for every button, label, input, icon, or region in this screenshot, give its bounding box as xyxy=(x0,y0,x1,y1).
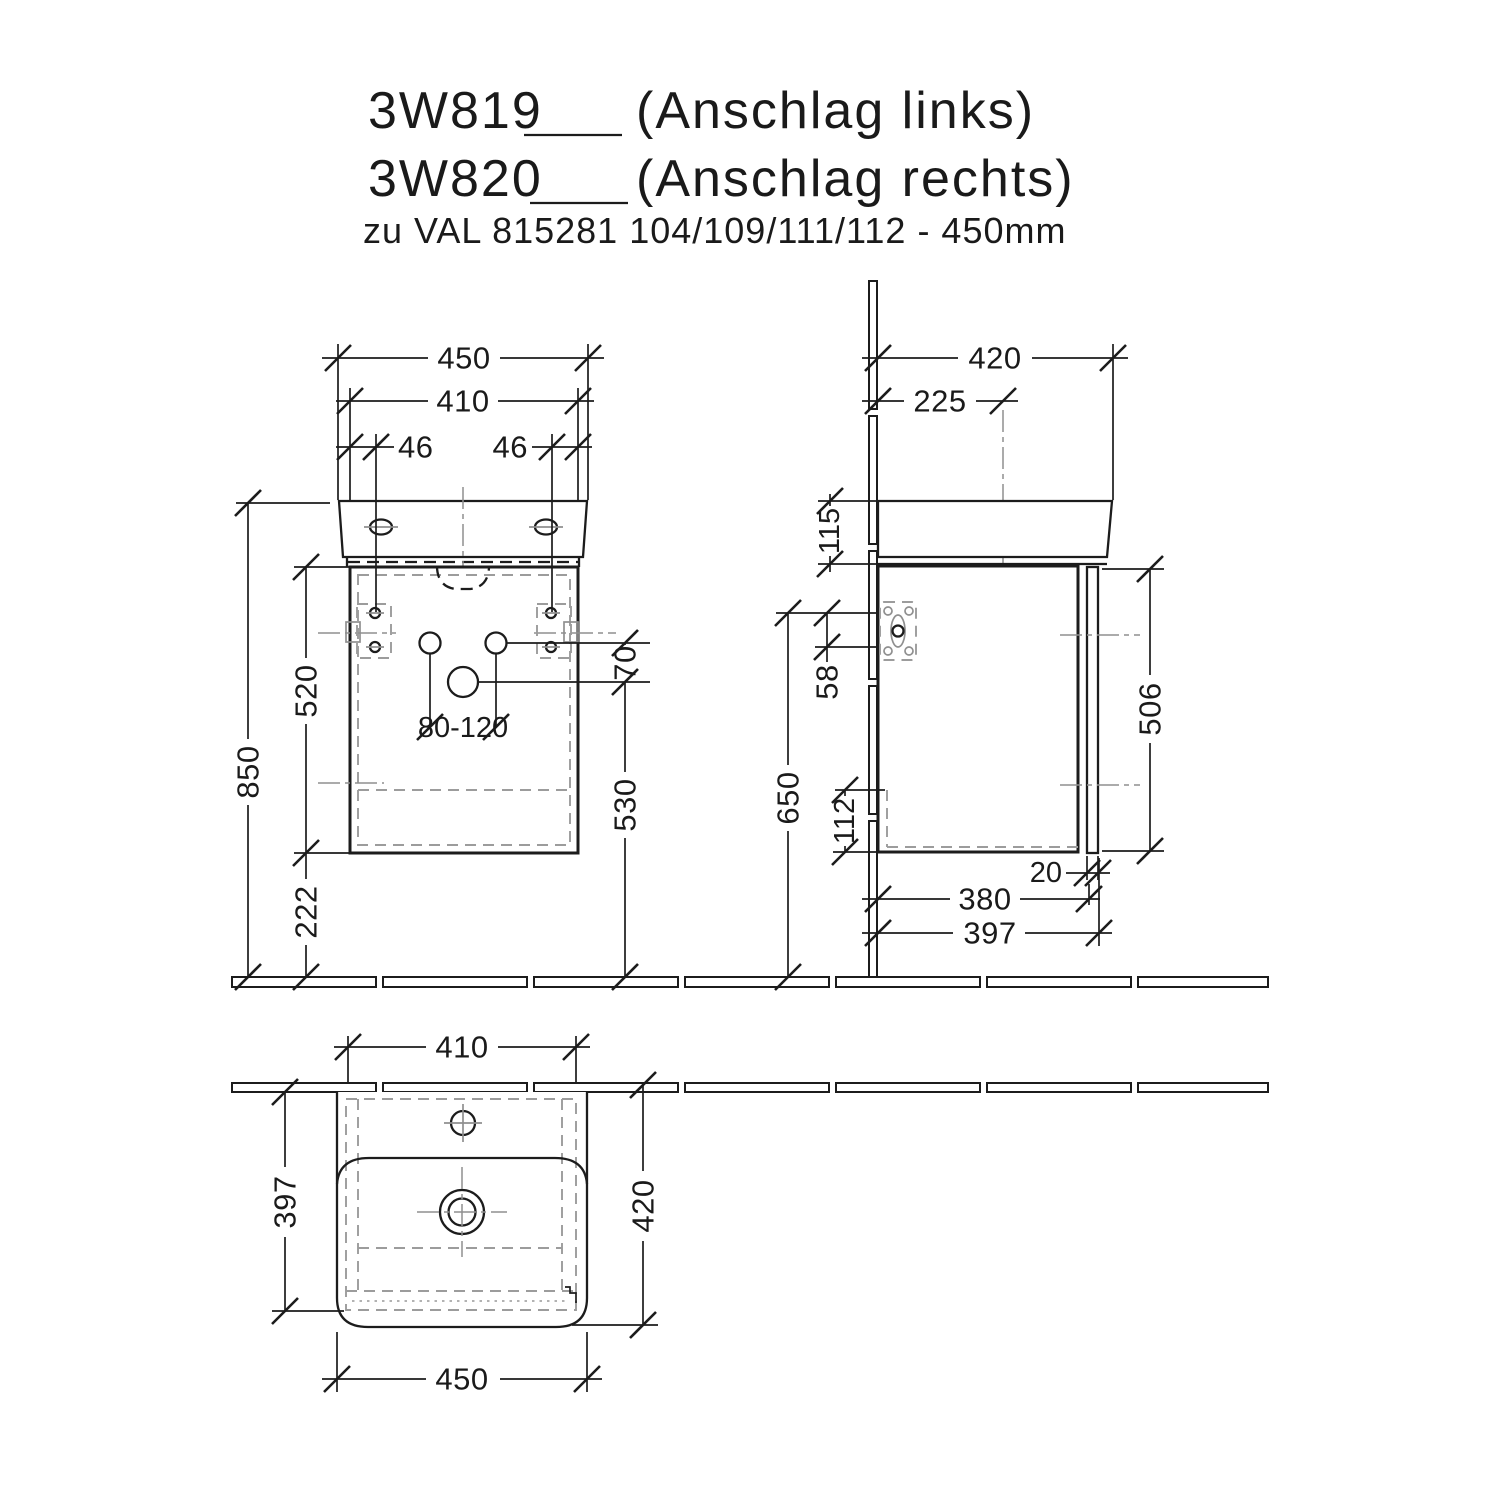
dim-side-tap-center: 225 xyxy=(913,384,966,419)
dim-plan-carcass-width: 410 xyxy=(435,1030,488,1065)
dim-front-carcass-width: 410 xyxy=(436,384,489,419)
subtitle: zu VAL 815281 104/109/111/112 - 450mm xyxy=(363,210,1066,251)
dim-side-hinge-offset: 58 xyxy=(810,664,845,699)
dim-side-door-height: 506 xyxy=(1133,682,1168,735)
product-code-right: 3W820 xyxy=(368,150,543,208)
spec-sheet-page: 3W819 (Anschlag links) 3W820 (Anschlag r… xyxy=(0,0,1500,1500)
plan-view: 410 xyxy=(232,1030,1268,1397)
dim-plan-carcass-depth: 397 xyxy=(268,1175,303,1228)
title-block: 3W819 (Anschlag links) 3W820 (Anschlag r… xyxy=(363,82,1075,251)
dim-side-door-thickness: 20 xyxy=(1030,857,1062,889)
variant-label-left: (Anschlag links) xyxy=(636,82,1035,140)
cabinet-side-outline xyxy=(878,566,1078,852)
dim-side-total-depth: 397 xyxy=(963,916,1016,951)
dim-front-total-height: 850 xyxy=(231,745,266,798)
dim-front-fixing-right: 46 xyxy=(493,430,528,465)
dim-side-recess-height: 112 xyxy=(829,798,861,844)
dim-side-basin-rim-height: 115 xyxy=(814,508,846,554)
cabinet-front-outline xyxy=(350,567,578,853)
dim-front-carcass-height: 520 xyxy=(289,664,324,717)
dim-front-drain-height: 530 xyxy=(608,778,643,831)
product-code-left: 3W819 xyxy=(368,82,543,140)
dim-side-reference-height: 650 xyxy=(771,771,806,824)
washbasin-side-outline xyxy=(878,501,1112,557)
wall-section-side xyxy=(869,281,877,977)
dim-front-hole-spacing: 70 xyxy=(608,645,643,680)
dim-side-carcass-depth: 380 xyxy=(958,882,1011,917)
wall-section-plan xyxy=(232,1083,1268,1092)
side-view: 420 225 115 xyxy=(771,281,1168,990)
door-side-outline xyxy=(1087,567,1098,853)
technical-drawing: 3W819 (Anschlag links) 3W820 (Anschlag r… xyxy=(0,0,1500,1500)
dim-plan-basin-depth: 420 xyxy=(626,1179,661,1232)
dim-front-supply-range: 80-120 xyxy=(418,712,508,744)
floor-line xyxy=(232,977,1268,987)
front-view: 450 410 46 46 xyxy=(231,341,651,991)
dim-front-fixing-left: 46 xyxy=(398,430,433,465)
dim-side-basin-depth: 420 xyxy=(968,341,1021,376)
dim-plan-basin-width: 450 xyxy=(435,1362,488,1397)
dim-front-overall-width: 450 xyxy=(437,341,490,376)
dim-front-floor-clearance: 222 xyxy=(289,885,324,938)
variant-label-right: (Anschlag rechts) xyxy=(636,150,1075,208)
